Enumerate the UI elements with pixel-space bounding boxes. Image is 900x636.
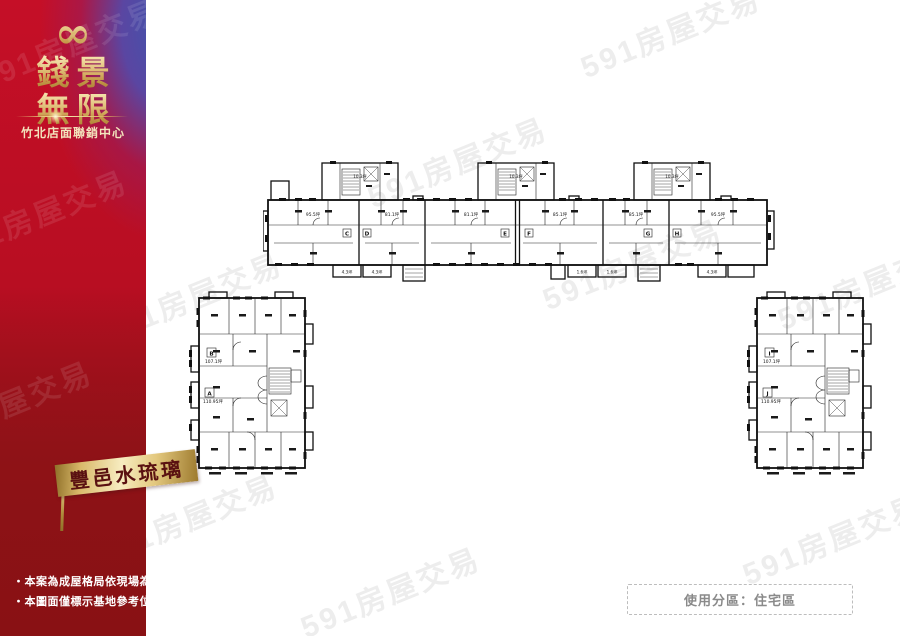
brand-subtitle: 竹北店面聯銷中心 (0, 124, 146, 141)
unit-area: 95.5坪 (306, 211, 321, 218)
watermark: 591房屋交易 (0, 348, 99, 460)
balcony-label: 1.6坪 (607, 269, 618, 276)
watermark: 591房屋交易 (735, 481, 900, 593)
floorplan-left-block: B 107.1坪 A 110.95坪 (187, 290, 317, 480)
unit-area: 110.95坪 (203, 398, 223, 405)
unit-letter: C (345, 232, 349, 238)
core-area-label: 10.3坪 (353, 173, 367, 180)
watermark: 591房屋交易 (0, 157, 134, 269)
sidebar-panel: 591房屋交易 591房屋交易 591房屋交易 ∞ 錢景 無限 竹北店面聯銷中心… (0, 0, 146, 636)
stair-core (322, 161, 398, 200)
unit-letter: J (765, 392, 768, 398)
unit-area: 110.95坪 (761, 398, 781, 405)
watermark: 591房屋交易 (573, 0, 767, 87)
watermark: 591房屋交易 (293, 534, 487, 636)
window-ticks (265, 198, 771, 266)
disclaimer-line: ‧本圖面僅標示基地參考位置 (13, 593, 146, 609)
brand-title-line2: 無限 (0, 91, 146, 128)
balcony-label: 4.3坪 (372, 269, 383, 276)
unit-area: 107.1坪 (763, 358, 781, 365)
unit-area: 95.5坪 (711, 211, 726, 218)
core-area-label: 10.3坪 (509, 173, 523, 180)
unit-area: 107.1坪 (205, 358, 223, 365)
unit-letter: H (675, 232, 680, 238)
unit-letter: I (768, 352, 770, 358)
floorplan-right-block: I 107.1坪 J 110.95坪 (745, 290, 875, 480)
stair-core (478, 161, 554, 200)
floorplan-top-building: 10.3坪 10.3坪 10.3坪 (263, 153, 779, 287)
unit-letter: B (209, 352, 213, 358)
unit-letter: A (207, 392, 212, 398)
unit-letter: G (646, 232, 651, 238)
unit-area: 81.1坪 (464, 211, 479, 218)
unit-badges (343, 229, 681, 237)
unit-letter: D (365, 232, 370, 238)
balconies (333, 265, 754, 281)
unit-letter: E (503, 232, 507, 238)
core-area-label: 10.3坪 (665, 173, 679, 180)
balcony-label: 4.3坪 (342, 269, 353, 276)
listing-image: 591房屋交易 591房屋交易 591房屋交易 591房屋交易 591房屋交易 … (0, 0, 900, 636)
stair-core (634, 161, 710, 200)
sparkle-icon (48, 109, 63, 124)
zoning-info-box: 使用分區：住宅區 (627, 584, 853, 615)
balcony-label: 4.3坪 (707, 269, 718, 276)
unit-area: 81.1坪 (385, 211, 400, 218)
disclaimer-line: ‧本案為成屋格局依現場為準 (13, 573, 146, 589)
balcony-label: 1.6坪 (577, 269, 588, 276)
unit-letter: F (527, 232, 531, 238)
zoning-label: 使用分區：住宅區 (684, 590, 796, 609)
unit-area: 85.1坪 (629, 211, 644, 218)
gold-divider (16, 116, 128, 117)
unit-area: 85.1坪 (553, 211, 568, 218)
